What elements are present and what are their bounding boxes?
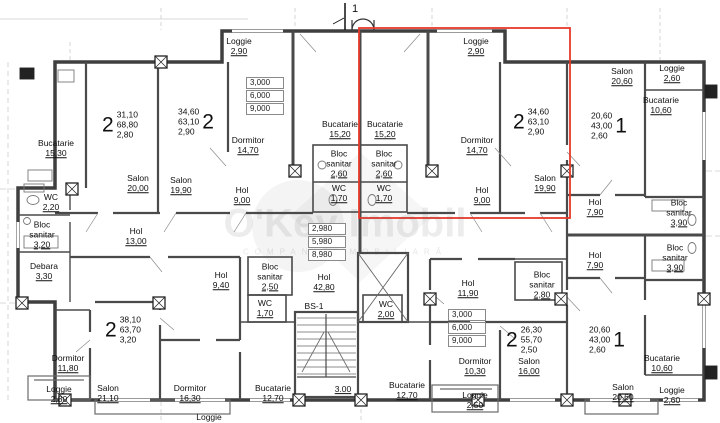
floor-plan-drawing	[0, 0, 720, 420]
watermark-logo	[252, 152, 432, 282]
section-marker-line	[333, 3, 345, 30]
floor-plan-page: { "watermark": { "brand": "O'Key Imobil"…	[0, 0, 720, 420]
stairwell	[295, 312, 358, 397]
inner-walls	[18, 31, 704, 400]
elevator-shaft	[358, 253, 408, 322]
